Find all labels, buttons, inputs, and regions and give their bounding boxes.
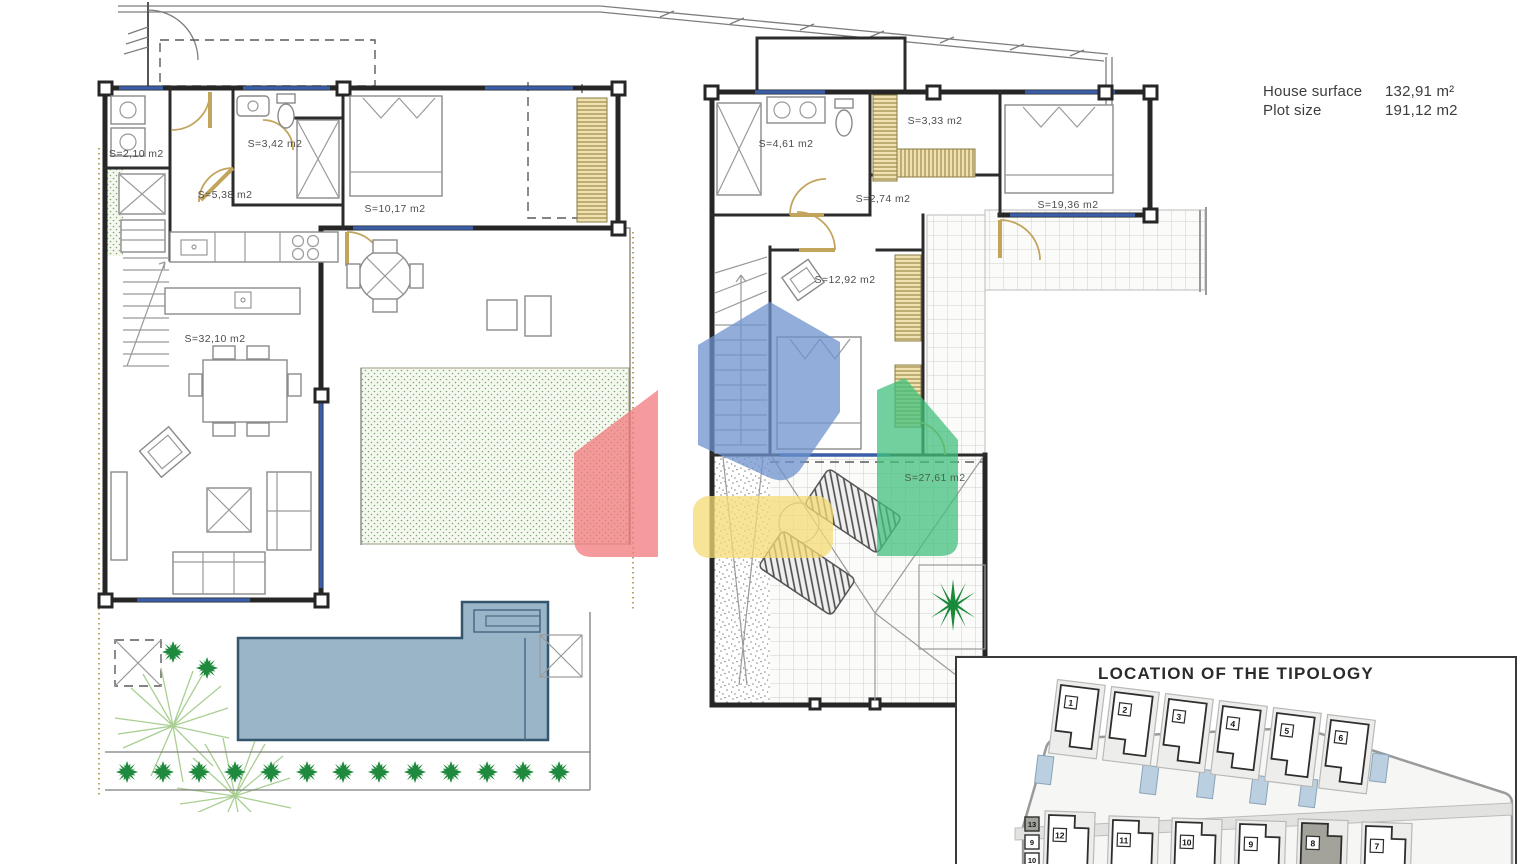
upper-terrace-tiles bbox=[985, 210, 1205, 290]
dressing-label: S=3,33 m2 bbox=[908, 115, 963, 127]
stairs bbox=[715, 257, 767, 445]
toilet bbox=[835, 99, 853, 108]
site-house: 2 bbox=[1103, 687, 1160, 766]
pool-area bbox=[115, 602, 582, 740]
site-side-units: 13 9 10 bbox=[1025, 817, 1039, 864]
house-number: 11 bbox=[1119, 835, 1129, 845]
ground-floor-plan: S=2,10 m2 S=3,42 m2 S=5,38 m2 S=10,17 m2… bbox=[85, 0, 650, 812]
site-house: 5 bbox=[1265, 708, 1322, 787]
site-house: 3 bbox=[1157, 694, 1214, 773]
master-bedroom-label: S=19,36 m2 bbox=[1038, 199, 1099, 211]
house-number: 8 bbox=[1310, 838, 1315, 848]
pool bbox=[238, 602, 548, 740]
bed bbox=[350, 96, 442, 196]
house-surface-value: 132,91 m² bbox=[1385, 82, 1454, 101]
house-surface-label: House surface bbox=[1263, 82, 1385, 101]
porch-overhang-dashed bbox=[160, 40, 375, 86]
wardrobe bbox=[897, 149, 975, 177]
master-bedroom bbox=[1005, 105, 1113, 193]
site-house: 12 bbox=[1042, 811, 1095, 864]
site-house: 1 bbox=[1049, 680, 1106, 759]
armchair bbox=[140, 427, 191, 477]
shrub bbox=[161, 640, 184, 663]
wardrobe bbox=[873, 95, 897, 181]
site-plan-title: LOCATION OF THE TIPOLOGY bbox=[1098, 664, 1374, 683]
site-house: 11 bbox=[1106, 816, 1159, 864]
living-kitchen-label: S=32,10 m2 bbox=[185, 333, 246, 345]
kitchen bbox=[165, 232, 338, 314]
house-number: 12 bbox=[1055, 830, 1065, 840]
surface-info-block: House surface 132,91 m² Plot size 191,12… bbox=[1263, 82, 1458, 120]
house-number: 10 bbox=[1182, 837, 1192, 847]
balcony-tiles bbox=[927, 215, 985, 455]
living-room bbox=[111, 346, 311, 594]
bedroom2-label: S=12,92 m2 bbox=[815, 274, 876, 286]
hallway-label: S=5,38 m2 bbox=[198, 189, 253, 201]
site-house: 7 bbox=[1359, 822, 1412, 864]
bed bbox=[777, 337, 861, 449]
plot-size-label: Plot size bbox=[1263, 101, 1385, 120]
wardrobe bbox=[577, 98, 607, 222]
landing-label: S=2,74 m2 bbox=[856, 193, 911, 205]
porch-dining bbox=[347, 240, 551, 336]
floor-plan-sheet: S=2,10 m2 S=3,42 m2 S=5,38 m2 S=10,17 m2… bbox=[0, 0, 1536, 864]
plot-size-value: 191,12 m2 bbox=[1385, 101, 1458, 120]
bathroom-label: S=3,42 m2 bbox=[248, 138, 303, 150]
unit-number: 10 bbox=[1028, 856, 1036, 864]
bathroom-label: S=4,61 m2 bbox=[759, 138, 814, 150]
site-plan: LOCATION OF THE TIPOLOGY 1 2 bbox=[953, 645, 1528, 864]
house-number: 7 bbox=[1374, 841, 1379, 851]
bed bbox=[1005, 105, 1113, 193]
site-house: 6 bbox=[1319, 715, 1376, 794]
wardrobe bbox=[895, 365, 921, 427]
site-house: 10 bbox=[1169, 818, 1222, 864]
site-house: 4 bbox=[1211, 701, 1268, 780]
shrub bbox=[195, 656, 218, 679]
skylight-box bbox=[757, 38, 905, 92]
first-floor-plan: S=4,61 m2 S=3,33 m2 S=2,74 m2 S=19,36 m2… bbox=[695, 25, 1215, 715]
site-house: 9 bbox=[1233, 820, 1286, 864]
site-house-highlighted: 8 bbox=[1295, 819, 1348, 864]
wardrobe bbox=[895, 255, 921, 341]
stairs bbox=[123, 258, 169, 366]
dressing-room bbox=[873, 95, 975, 181]
unit-number: 9 bbox=[1030, 838, 1034, 847]
island bbox=[165, 288, 300, 314]
side-overhang-dashed bbox=[528, 82, 582, 218]
sofa-2 bbox=[173, 552, 265, 594]
tv-unit bbox=[111, 472, 127, 560]
dining-table bbox=[203, 360, 287, 422]
bedroom-label: S=10,17 m2 bbox=[365, 203, 426, 215]
utility-room-label: S=2,10 m2 bbox=[109, 148, 164, 160]
unit-number: 13 bbox=[1028, 820, 1036, 829]
grass-plant bbox=[115, 668, 229, 782]
house-number: 9 bbox=[1248, 839, 1253, 849]
